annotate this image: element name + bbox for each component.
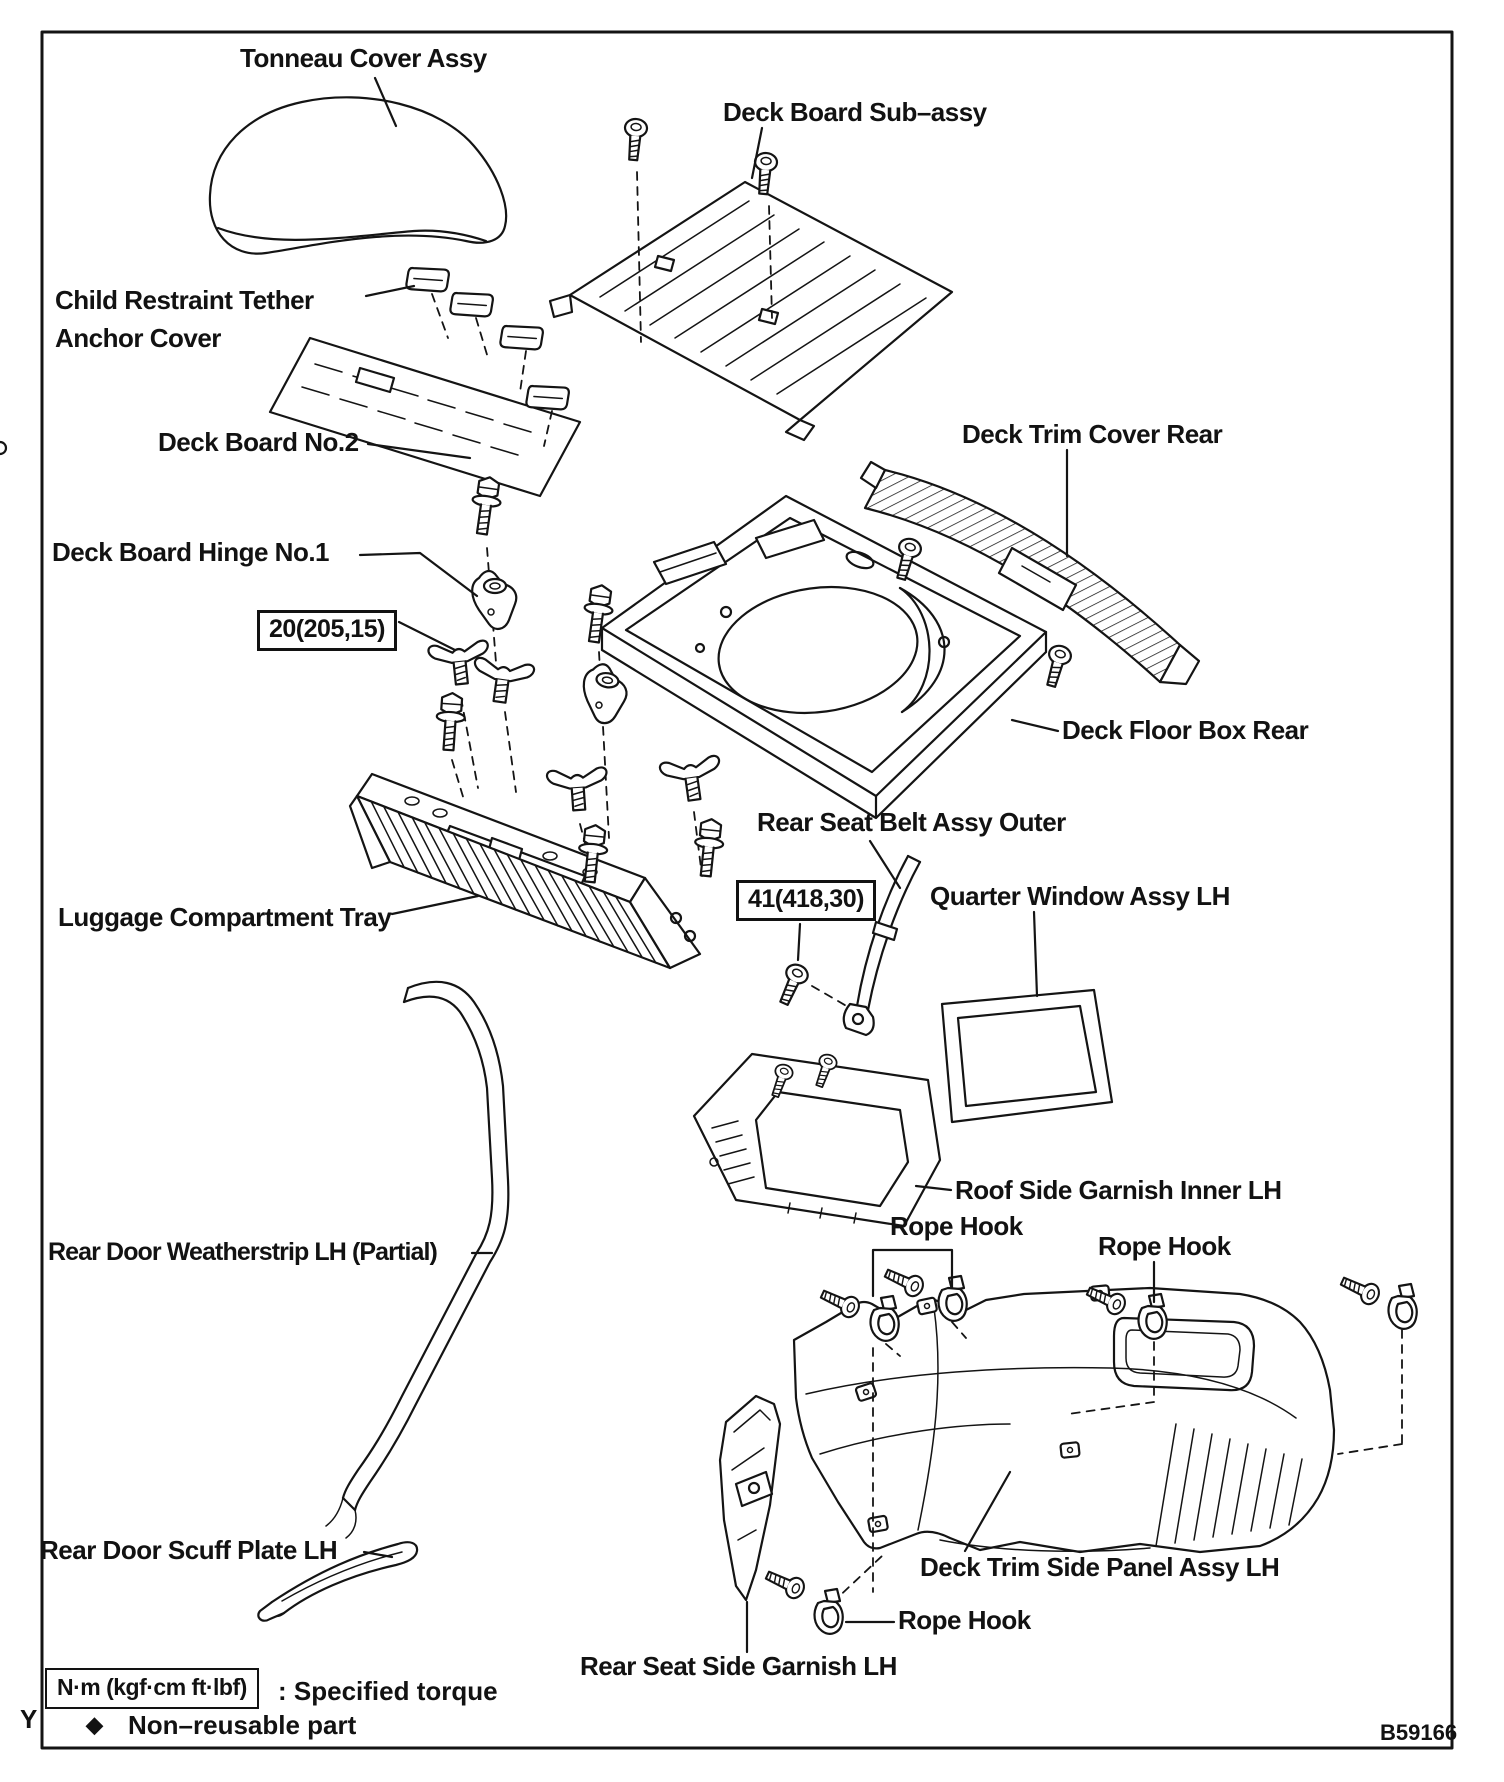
label-deck-trim-cover-rear: Deck Trim Cover Rear [962,420,1222,449]
hex-bolt-icon [468,475,504,535]
page-marker: Y [20,1706,37,1732]
label-roof-side-garnish: Roof Side Garnish Inner LH [955,1176,1281,1205]
legend-non-reusable-text: Non–reusable part [128,1712,356,1738]
label-deck-floor-box-rear: Deck Floor Box Rear [1062,716,1308,745]
anchor-cover-icon [498,319,544,355]
wing-clamp-icon [547,767,609,812]
label-rope-hook-right: Rope Hook [1098,1232,1231,1261]
anchor-cover-icon [448,286,494,322]
torque-spec-seat-belt: 41(418,30) [736,880,876,921]
label-rear-door-weatherstrip: Rear Door Weatherstrip LH (Partial) [48,1238,437,1266]
anchor-cover-icon [404,261,450,297]
screw-icon [882,1264,926,1299]
hex-bolt-icon [692,818,726,878]
hex-bolt-icon [580,583,616,643]
label-deck-trim-side-panel: Deck Trim Side Panel Assy LH [920,1553,1279,1582]
deck-board-no2-drawing [0,338,580,496]
rope-hook-icon [815,1589,843,1634]
label-rear-seat-side-garnish: Rear Seat Side Garnish LH [580,1652,897,1681]
label-deck-board-no2: Deck Board No.2 [158,428,359,457]
label-rear-seat-belt: Rear Seat Belt Assy Outer [757,808,1066,837]
non-reusable-diamond-icon: ◆ [86,1714,103,1736]
label-deck-board-hinge-no1: Deck Board Hinge No.1 [52,538,329,567]
quarter-window-drawing [942,990,1112,1122]
legend-torque-meaning: : Specified torque [278,1678,498,1704]
hinge-icon [578,662,631,727]
label-rope-hook-top: Rope Hook [890,1212,1023,1241]
label-deck-board-sub-assy: Deck Board Sub–assy [723,98,987,127]
label-tonneau-cover: Tonneau Cover Assy [240,44,487,73]
label-luggage-tray: Luggage Compartment Tray [58,903,391,932]
rear-seat-side-garnish-drawing [720,1396,780,1600]
figure-code: B59166 [1380,1722,1457,1744]
hex-bolt-icon [434,692,466,751]
screw-icon [622,118,647,161]
torque-spec-hinge: 20(205,15) [257,610,397,651]
exploded-parts-diagram-page: Tonneau Cover Assy Deck Board Sub–assy C… [0,0,1504,1782]
label-rear-door-scuff-plate: Rear Door Scuff Plate LH [40,1536,337,1565]
tonneau-cover-drawing [210,97,506,253]
wing-clamp-icon [470,657,535,706]
screw-icon [763,1566,807,1601]
label-quarter-window: Quarter Window Assy LH [930,882,1230,911]
label-child-restraint-tether: Child Restraint Tether [55,286,314,315]
deck-board-sub-assy-drawing [550,182,952,440]
rope-hook-icon [871,1296,899,1341]
screw-icon [774,961,811,1007]
wing-clamp-icon [659,755,724,804]
label-rope-hook-bottom: Rope Hook [898,1606,1031,1635]
legend-torque-unit-box: N·m (kgf·cm ft·lbf) [45,1668,259,1709]
screw-icon [1338,1272,1382,1307]
luggage-compartment-tray-drawing [350,774,700,968]
hinge-icon [472,571,516,629]
rope-hook-icon [1389,1284,1417,1329]
label-anchor-cover: Anchor Cover [55,324,221,353]
